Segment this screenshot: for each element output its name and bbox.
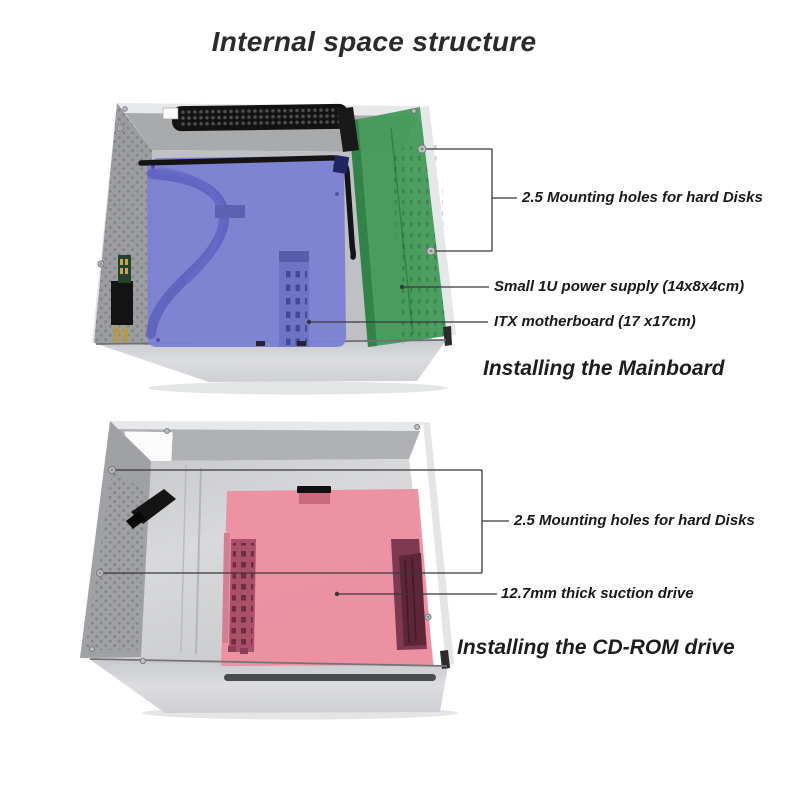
page-title: Internal space structure <box>212 26 537 58</box>
label-hdd-mount-bottom: 2.5 Mounting holes for hard Disks <box>514 511 755 530</box>
caption-mainboard: Installing the Mainboard <box>483 356 725 381</box>
case-illustrations <box>0 0 800 800</box>
vent-grille <box>172 104 348 131</box>
case-photo-cdrom <box>80 421 458 720</box>
motherboard-highlight-blue <box>147 156 346 347</box>
io-cutout <box>163 108 178 119</box>
caption-cdrom: Installing the CD-ROM drive <box>457 635 735 660</box>
cdrom-highlight-pink <box>221 486 433 666</box>
case-front-face <box>88 658 448 713</box>
front-slot <box>224 674 436 681</box>
case-shadow <box>148 382 448 395</box>
corner-notch <box>443 326 452 346</box>
label-hdd-mount-top: 2.5 Mounting holes for hard Disks <box>522 188 763 207</box>
case-photo-mainboard <box>92 103 456 395</box>
perforated-left-wall <box>80 421 151 658</box>
label-suction-drive: 12.7mm thick suction drive <box>501 584 694 603</box>
label-itx-motherboard: ITX motherboard (17 x17cm) <box>494 312 696 331</box>
product-infographic: Internal space structure 2.5 Mounting ho… <box>0 0 800 800</box>
label-power-supply: Small 1U power supply (14x8x4cm) <box>494 277 744 296</box>
